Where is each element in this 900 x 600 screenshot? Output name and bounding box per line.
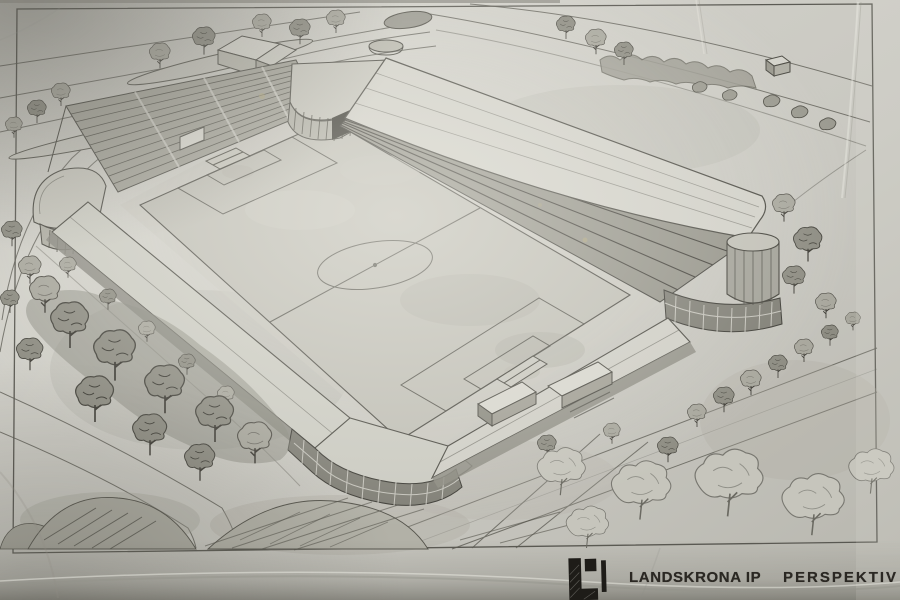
drawing-type-text: PERSPEKTIV (783, 569, 898, 586)
title-block: LANDSKRONA IP PERSPEKTIV (0, 0, 900, 600)
landskrona-ip-logo (565, 551, 612, 600)
club-name-text: LANDSKRONA IP (629, 569, 761, 586)
photo-of-stadium-drawing: LANDSKRONA IP PERSPEKTIV (0, 0, 900, 600)
